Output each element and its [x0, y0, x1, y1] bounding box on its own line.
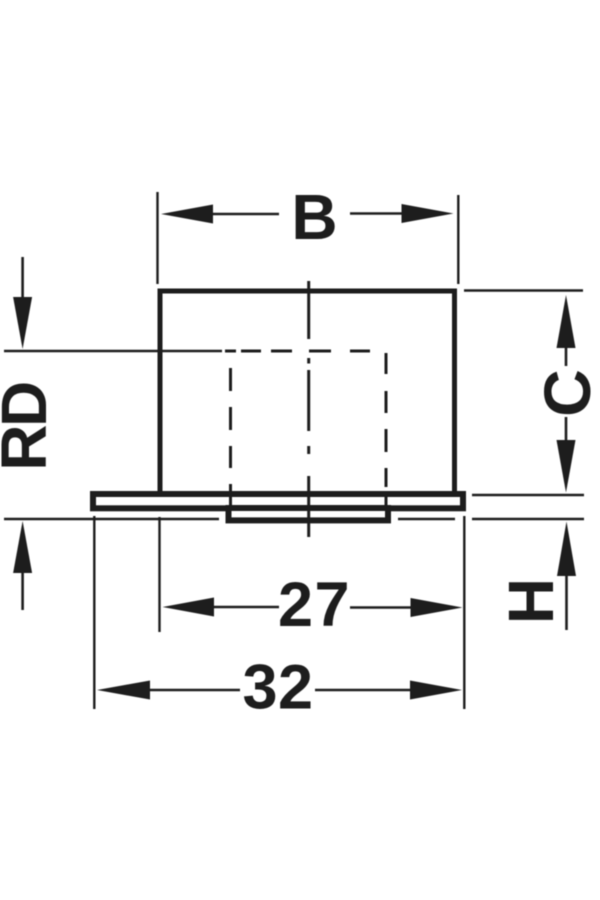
- svg-text:RD: RD: [0, 383, 60, 471]
- svg-text:H: H: [495, 578, 567, 624]
- svg-text:27: 27: [278, 570, 351, 640]
- svg-text:B: B: [291, 181, 337, 253]
- svg-text:C: C: [530, 369, 600, 417]
- svg-text:32: 32: [242, 653, 313, 723]
